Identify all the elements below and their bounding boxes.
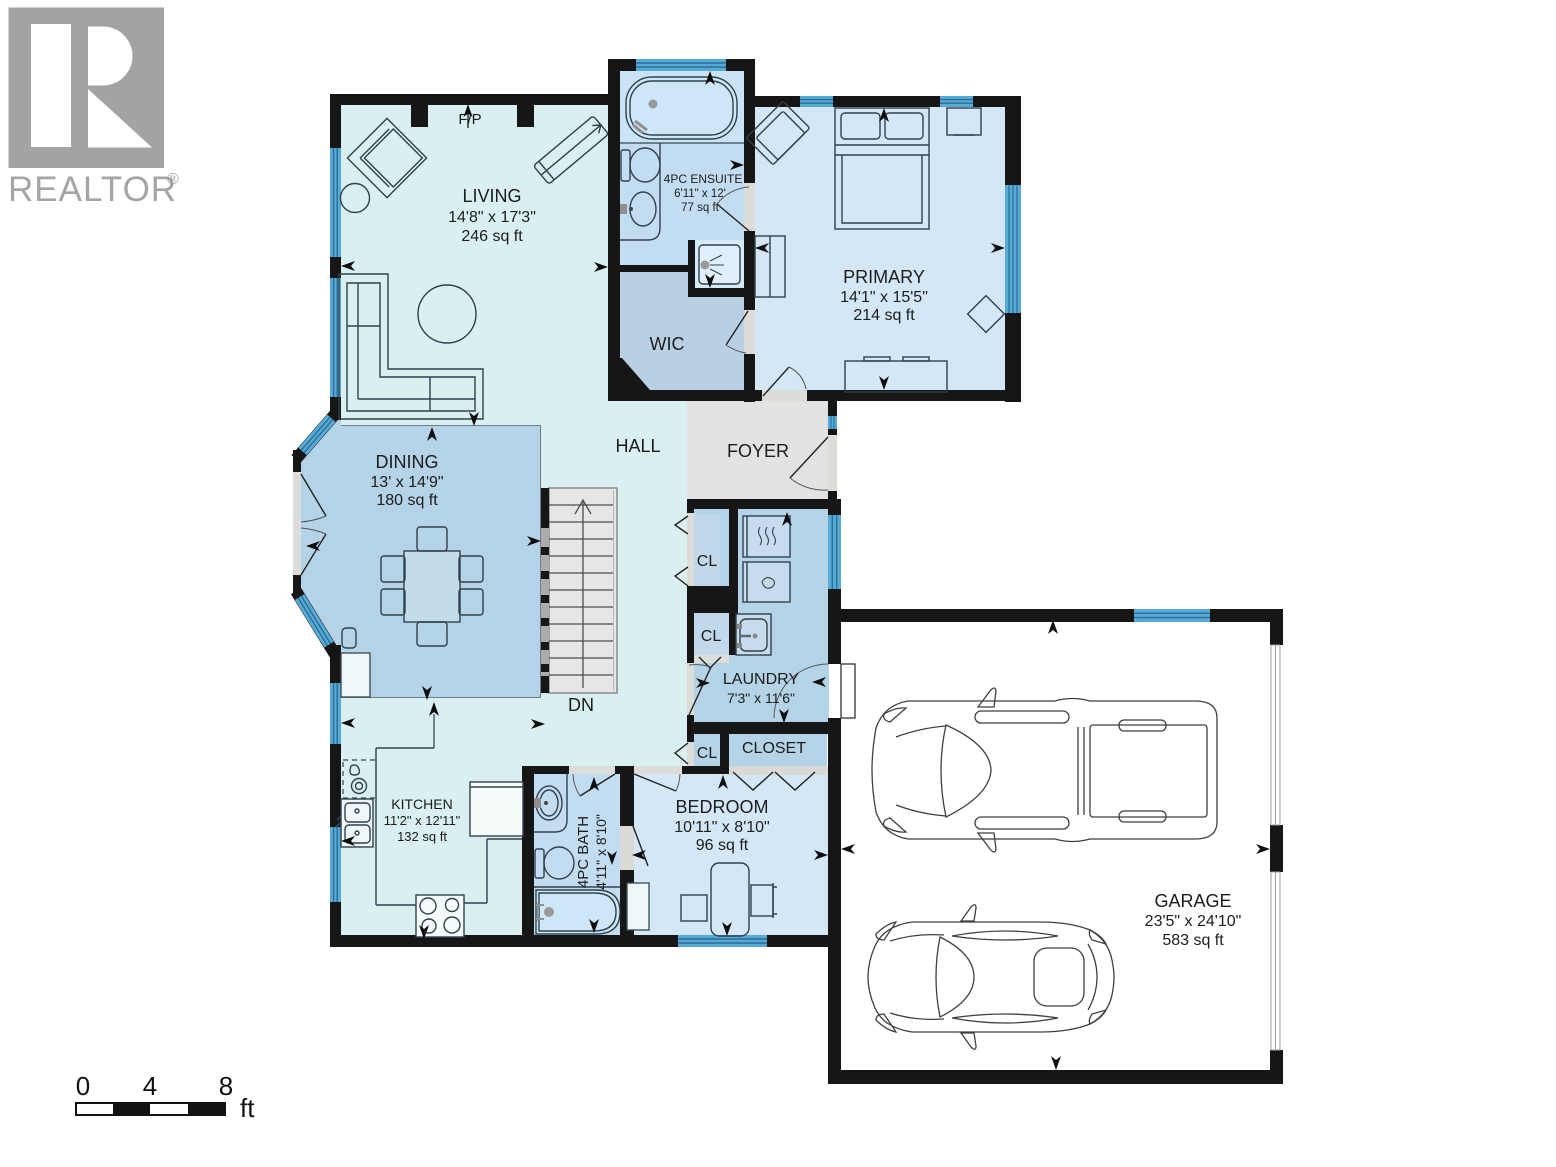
svg-text:77 sq ft: 77 sq ft [681,202,720,214]
svg-text:6'11" x 12': 6'11" x 12' [674,188,726,200]
svg-text:8: 8 [219,1071,233,1101]
svg-text:FOYER: FOYER [727,441,789,461]
svg-text:96 sq ft: 96 sq ft [696,837,749,854]
svg-text:132 sq ft: 132 sq ft [397,829,447,844]
svg-text:HALL: HALL [615,436,660,456]
svg-text:REALTOR: REALTOR [8,170,177,209]
svg-text:CL: CL [701,628,722,645]
svg-text:KITCHEN: KITCHEN [391,796,452,812]
svg-text:DN: DN [568,695,594,715]
svg-text:7'3" x 11'6": 7'3" x 11'6" [727,690,795,706]
svg-text:180 sq ft: 180 sq ft [376,492,438,509]
svg-text:4PC BATH: 4PC BATH [575,816,592,888]
svg-text:14'1" x 15'5": 14'1" x 15'5" [840,289,928,306]
svg-text:246 sq ft: 246 sq ft [461,228,523,245]
svg-text:®: ® [167,171,179,188]
svg-text:214 sq ft: 214 sq ft [853,307,915,324]
svg-text:4'11" x 8'10": 4'11" x 8'10" [593,814,609,890]
svg-text:ft: ft [240,1093,255,1123]
svg-text:10'11" x 8'10": 10'11" x 8'10" [674,819,769,836]
svg-text:LIVING: LIVING [462,186,521,206]
svg-text:11'2" x 12'11": 11'2" x 12'11" [384,813,461,828]
svg-text:13' x 14'9": 13' x 14'9" [370,474,443,491]
svg-text:LAUNDRY: LAUNDRY [723,671,800,688]
svg-text:4PC ENSUITE: 4PC ENSUITE [664,172,743,186]
svg-text:14'8" x 17'3": 14'8" x 17'3" [448,209,536,226]
svg-text:0: 0 [76,1071,90,1101]
svg-text:4: 4 [143,1071,157,1101]
svg-text:CL: CL [697,745,718,762]
svg-text:23'5" x 24'10": 23'5" x 24'10" [1145,913,1242,930]
svg-text:583 sq ft: 583 sq ft [1162,932,1224,949]
svg-text:BEDROOM: BEDROOM [675,797,768,817]
svg-text:CL: CL [697,553,718,570]
svg-text:CLOSET: CLOSET [742,740,806,757]
svg-text:GARAGE: GARAGE [1154,891,1231,911]
svg-text:DINING: DINING [376,452,439,472]
svg-text:WIC: WIC [650,334,685,354]
svg-text:F/P: F/P [458,111,481,128]
svg-text:PRIMARY: PRIMARY [843,267,925,287]
